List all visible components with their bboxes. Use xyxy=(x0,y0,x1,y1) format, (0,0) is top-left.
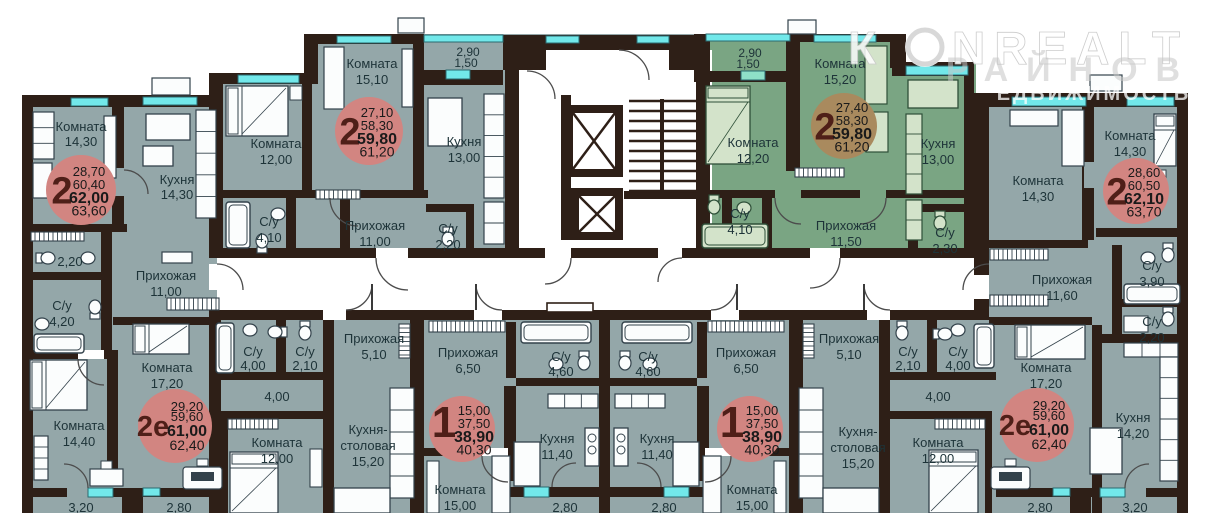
svg-text:4,10: 4,10 xyxy=(727,222,752,237)
svg-text:2,10: 2,10 xyxy=(895,358,920,373)
svg-text:12,20: 12,20 xyxy=(737,151,770,166)
svg-text:Комната: Комната xyxy=(56,119,108,134)
svg-text:Комната: Комната xyxy=(142,360,194,375)
svg-text:40,30: 40,30 xyxy=(456,442,491,458)
svg-text:1,50: 1,50 xyxy=(454,56,478,70)
svg-text:11,00: 11,00 xyxy=(150,284,182,299)
svg-text:Кухня: Кухня xyxy=(447,134,482,149)
svg-text:2,30: 2,30 xyxy=(932,241,957,256)
svg-text:Комната: Комната xyxy=(1021,360,1073,375)
svg-text:Кухня: Кухня xyxy=(921,136,956,151)
svg-text:4,20: 4,20 xyxy=(49,314,74,329)
svg-text:2,80: 2,80 xyxy=(651,500,676,513)
svg-text:4,00: 4,00 xyxy=(925,389,950,404)
svg-text:2,20: 2,20 xyxy=(1139,330,1164,345)
svg-text:1,50: 1,50 xyxy=(736,57,760,71)
svg-text:Комната: Комната xyxy=(1105,128,1157,143)
svg-text:6,50: 6,50 xyxy=(455,361,480,376)
svg-text:63,60: 63,60 xyxy=(71,203,106,219)
svg-text:15,20: 15,20 xyxy=(824,72,857,87)
svg-text:4,10: 4,10 xyxy=(256,230,281,245)
svg-text:6,50: 6,50 xyxy=(733,361,758,376)
svg-text:14,30: 14,30 xyxy=(65,134,98,149)
svg-text:4,00: 4,00 xyxy=(945,358,970,373)
svg-text:12,00: 12,00 xyxy=(260,152,293,167)
svg-text:Комната: Комната xyxy=(727,482,779,497)
svg-text:2,10: 2,10 xyxy=(292,358,317,373)
svg-text:Комната: Комната xyxy=(1013,173,1065,188)
svg-text:5,10: 5,10 xyxy=(361,347,386,362)
svg-text:63,70: 63,70 xyxy=(1126,204,1161,220)
svg-text:Комната: Комната xyxy=(252,435,304,450)
svg-text:2,20: 2,20 xyxy=(57,254,82,269)
svg-text:С/у: С/у xyxy=(898,344,918,359)
svg-text:3,20: 3,20 xyxy=(1122,500,1147,513)
svg-text:Комната: Комната xyxy=(54,418,106,433)
svg-text:15,10: 15,10 xyxy=(356,72,389,87)
svg-text:13,00: 13,00 xyxy=(448,150,481,165)
svg-text:Прихожая: Прихожая xyxy=(345,218,405,233)
svg-text:2,80: 2,80 xyxy=(166,500,191,513)
svg-text:15,00: 15,00 xyxy=(444,498,477,513)
svg-text:14,30: 14,30 xyxy=(1114,144,1147,159)
svg-text:2,20: 2,20 xyxy=(435,237,460,252)
svg-text:12,00: 12,00 xyxy=(261,451,294,466)
svg-text:К: К xyxy=(848,22,877,74)
svg-text:4,00: 4,00 xyxy=(264,389,289,404)
svg-text:Кухня: Кухня xyxy=(640,431,675,446)
svg-text:Комната: Комната xyxy=(347,56,399,71)
svg-text:15,00: 15,00 xyxy=(736,498,769,513)
svg-text:Кухня: Кухня xyxy=(540,431,575,446)
svg-text:1: 1 xyxy=(720,398,744,447)
svg-text:61,20: 61,20 xyxy=(834,139,869,155)
svg-text:столовая: столовая xyxy=(830,440,885,455)
svg-text:С/у: С/у xyxy=(935,225,955,240)
svg-text:3,90: 3,90 xyxy=(1139,274,1164,289)
svg-text:11,40: 11,40 xyxy=(541,447,573,462)
svg-text:Кухня: Кухня xyxy=(1116,410,1151,425)
svg-text:Комната: Комната xyxy=(728,135,780,150)
svg-text:Прихожая: Прихожая xyxy=(819,331,879,346)
svg-text:15,20: 15,20 xyxy=(352,454,385,469)
svg-text:61,20: 61,20 xyxy=(359,144,394,160)
svg-text:62,40: 62,40 xyxy=(1031,436,1066,452)
svg-text:Прихожая: Прихожая xyxy=(716,345,776,360)
svg-text:Комната: Комната xyxy=(913,435,965,450)
svg-text:13,00: 13,00 xyxy=(922,152,955,167)
svg-text:11,50: 11,50 xyxy=(830,234,862,249)
svg-text:2е: 2е xyxy=(137,411,169,443)
svg-text:ЕДВИЖИМОСТЬ: ЕДВИЖИМОСТЬ xyxy=(997,83,1192,105)
svg-text:59,60: 59,60 xyxy=(171,409,204,424)
svg-text:С/у: С/у xyxy=(259,214,279,229)
svg-text:С/у: С/у xyxy=(551,349,571,364)
svg-text:40,30: 40,30 xyxy=(744,442,779,458)
svg-text:Прихожая: Прихожая xyxy=(1032,272,1092,287)
svg-text:3,20: 3,20 xyxy=(68,500,93,513)
svg-text:5,10: 5,10 xyxy=(836,347,861,362)
svg-text:4,00: 4,00 xyxy=(240,358,265,373)
svg-text:11,40: 11,40 xyxy=(641,447,673,462)
svg-text:59,60: 59,60 xyxy=(1033,408,1066,423)
svg-text:С/у: С/у xyxy=(52,298,72,313)
svg-text:С/у: С/у xyxy=(638,349,658,364)
svg-text:14,40: 14,40 xyxy=(63,434,96,449)
svg-text:15,20: 15,20 xyxy=(842,456,875,471)
svg-text:4,60: 4,60 xyxy=(548,364,573,379)
svg-text:11,00: 11,00 xyxy=(359,234,391,249)
svg-text:С/у: С/у xyxy=(730,206,750,221)
svg-text:столовая: столовая xyxy=(340,438,395,453)
svg-text:Прихожая: Прихожая xyxy=(438,345,498,360)
svg-text:С/у: С/у xyxy=(1142,258,1162,273)
svg-text:2,80: 2,80 xyxy=(1027,500,1052,513)
svg-text:С/у: С/у xyxy=(243,344,263,359)
svg-text:2,80: 2,80 xyxy=(552,500,577,513)
svg-text:Прихожая: Прихожая xyxy=(816,218,876,233)
svg-text:14,20: 14,20 xyxy=(1117,426,1150,441)
svg-text:Прихожая: Прихожая xyxy=(136,268,196,283)
svg-text:С/у: С/у xyxy=(438,221,458,236)
svg-text:Комната: Комната xyxy=(251,136,303,151)
svg-text:Кухня-: Кухня- xyxy=(348,422,387,437)
svg-text:4,60: 4,60 xyxy=(635,364,660,379)
svg-text:С/у: С/у xyxy=(948,344,968,359)
svg-text:Кухня: Кухня xyxy=(160,172,195,187)
svg-text:2е: 2е xyxy=(999,410,1031,442)
svg-text:1: 1 xyxy=(432,398,456,447)
svg-text:62,40: 62,40 xyxy=(169,437,204,453)
svg-text:С/у: С/у xyxy=(1142,314,1162,329)
svg-text:14,30: 14,30 xyxy=(1022,189,1055,204)
svg-text:11,60: 11,60 xyxy=(1046,288,1078,303)
svg-text:С/у: С/у xyxy=(295,344,315,359)
svg-text:Комната: Комната xyxy=(435,482,487,497)
svg-text:12,00: 12,00 xyxy=(922,451,955,466)
svg-text:17,20: 17,20 xyxy=(151,376,184,391)
svg-text:14,30: 14,30 xyxy=(161,187,194,202)
svg-text:Кухня-: Кухня- xyxy=(838,424,877,439)
svg-text:Прихожая: Прихожая xyxy=(344,331,404,346)
